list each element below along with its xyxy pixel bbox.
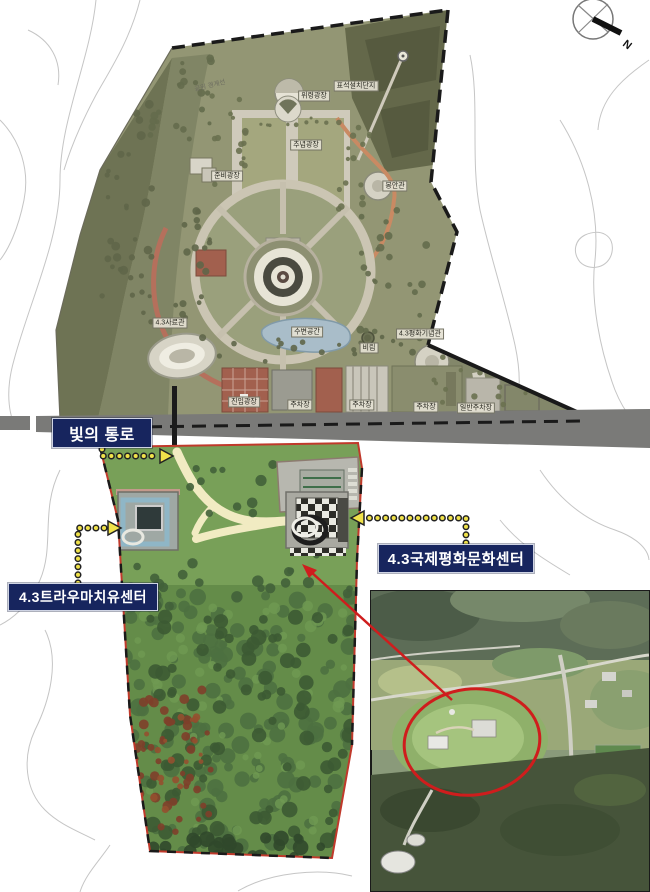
compass-icon: N <box>573 0 634 52</box>
callout-light-corridor: 빛의 통로 <box>52 418 152 448</box>
facility-label: 준비광장 <box>211 171 243 182</box>
facility-label: 비림 <box>360 343 379 354</box>
facility-label: 4.3사료관 <box>152 318 187 329</box>
facility-label: 봉안관 <box>382 181 407 192</box>
trauma-center-building <box>116 489 180 550</box>
facility-label: 추념광장 <box>290 140 322 151</box>
facility-label: 주차장 <box>349 400 374 411</box>
facility-label: 위령광장 <box>298 91 330 102</box>
facility-label: 주차장 <box>413 402 438 413</box>
culture-center-building <box>286 492 348 556</box>
facility-label: 진입광장 <box>228 397 260 408</box>
aerial-photo-inset <box>360 578 650 891</box>
callout-trauma-center: 4.3트라우마치유센터 <box>8 583 158 611</box>
site-plan-map: N 공원 경계선 표석설치단지 위령광장 추념광장 준비광장 봉안관 4.3사료… <box>0 0 650 892</box>
north-label: N <box>620 38 634 52</box>
callout-culture-center: 4.3국제평화문화센터 <box>378 544 534 573</box>
facility-label: 4.3평화기념관 <box>396 329 444 340</box>
facility-label: 수변공간 <box>291 327 323 338</box>
central-monument <box>245 239 321 315</box>
lower-site-area <box>100 443 367 870</box>
facility-label: 일반주차장 <box>457 403 495 414</box>
memorial-park-area <box>56 10 588 424</box>
facility-label: 주차장 <box>287 400 312 411</box>
facility-label: 표석설치단지 <box>334 81 379 92</box>
